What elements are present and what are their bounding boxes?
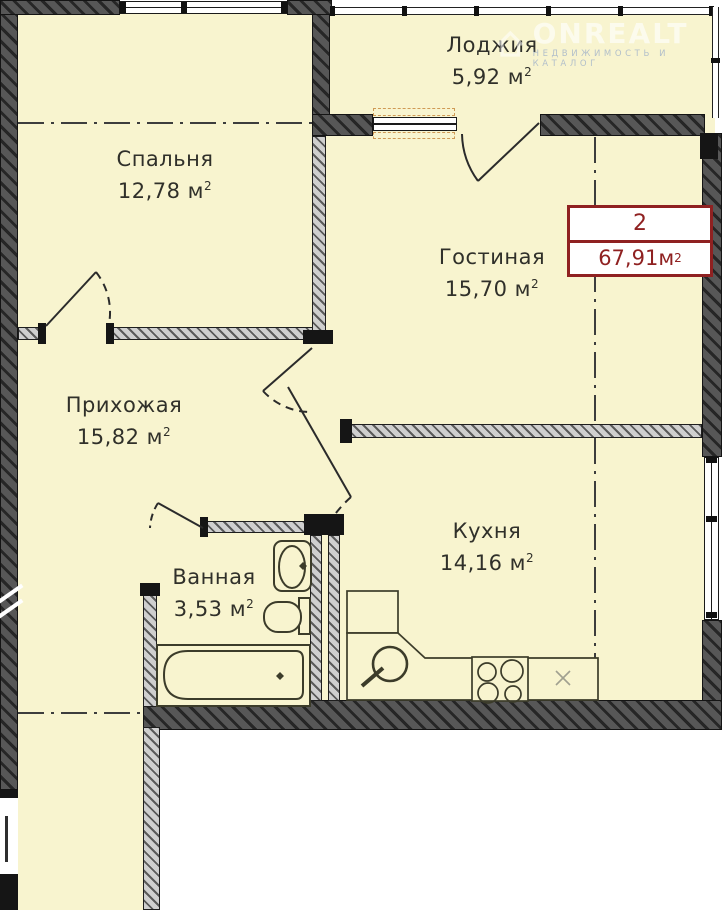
room-name: Прихожая bbox=[49, 392, 199, 419]
house-icon bbox=[492, 24, 529, 64]
unit-total-area: 67,91м2 bbox=[570, 243, 710, 275]
kitchen-cabinet bbox=[347, 591, 398, 633]
balcony-door bbox=[462, 123, 539, 181]
unit-info-badge: 2 67,91м2 bbox=[567, 205, 713, 277]
floor-plan: Лоджия 5,92 м2 Спальня 12,78 м2 Гостиная… bbox=[0, 0, 723, 910]
room-label-hallway: Прихожая 15,82 м2 bbox=[49, 392, 199, 451]
room-label-bedroom: Спальня 12,78 м2 bbox=[95, 146, 235, 205]
fixtures-layer bbox=[0, 0, 723, 910]
bathtub bbox=[157, 645, 310, 706]
watermark-tagline: НЕДВИЖИМОСТЬ И КАТАЛОГ bbox=[533, 49, 723, 69]
unit-rooms-count: 2 bbox=[570, 208, 710, 243]
watermark-brand: ONREALT bbox=[533, 19, 723, 49]
bedroom-door bbox=[46, 272, 110, 326]
room-area: 14,16 м2 bbox=[412, 545, 562, 577]
room-label-living: Гостиная 15,70 м2 bbox=[412, 244, 572, 303]
room-area: 3,53 м2 bbox=[144, 591, 284, 623]
stove bbox=[472, 657, 528, 703]
kitchen-door bbox=[288, 387, 351, 517]
living-room-door bbox=[263, 348, 312, 412]
room-area: 12,78 м2 bbox=[95, 173, 235, 205]
room-label-kitchen: Кухня 14,16 м2 bbox=[412, 518, 562, 577]
bathroom-door bbox=[150, 503, 203, 528]
room-area: 15,82 м2 bbox=[49, 419, 199, 451]
room-name: Спальня bbox=[95, 146, 235, 173]
room-name: Гостиная bbox=[412, 244, 572, 271]
room-label-bathroom: Ванная 3,53 м2 bbox=[144, 564, 284, 623]
room-name: Ванная bbox=[144, 564, 284, 591]
room-name: Кухня bbox=[412, 518, 562, 545]
watermark: ONREALT НЕДВИЖИМОСТЬ И КАТАЛОГ bbox=[492, 20, 723, 68]
room-area: 15,70 м2 bbox=[412, 271, 572, 303]
